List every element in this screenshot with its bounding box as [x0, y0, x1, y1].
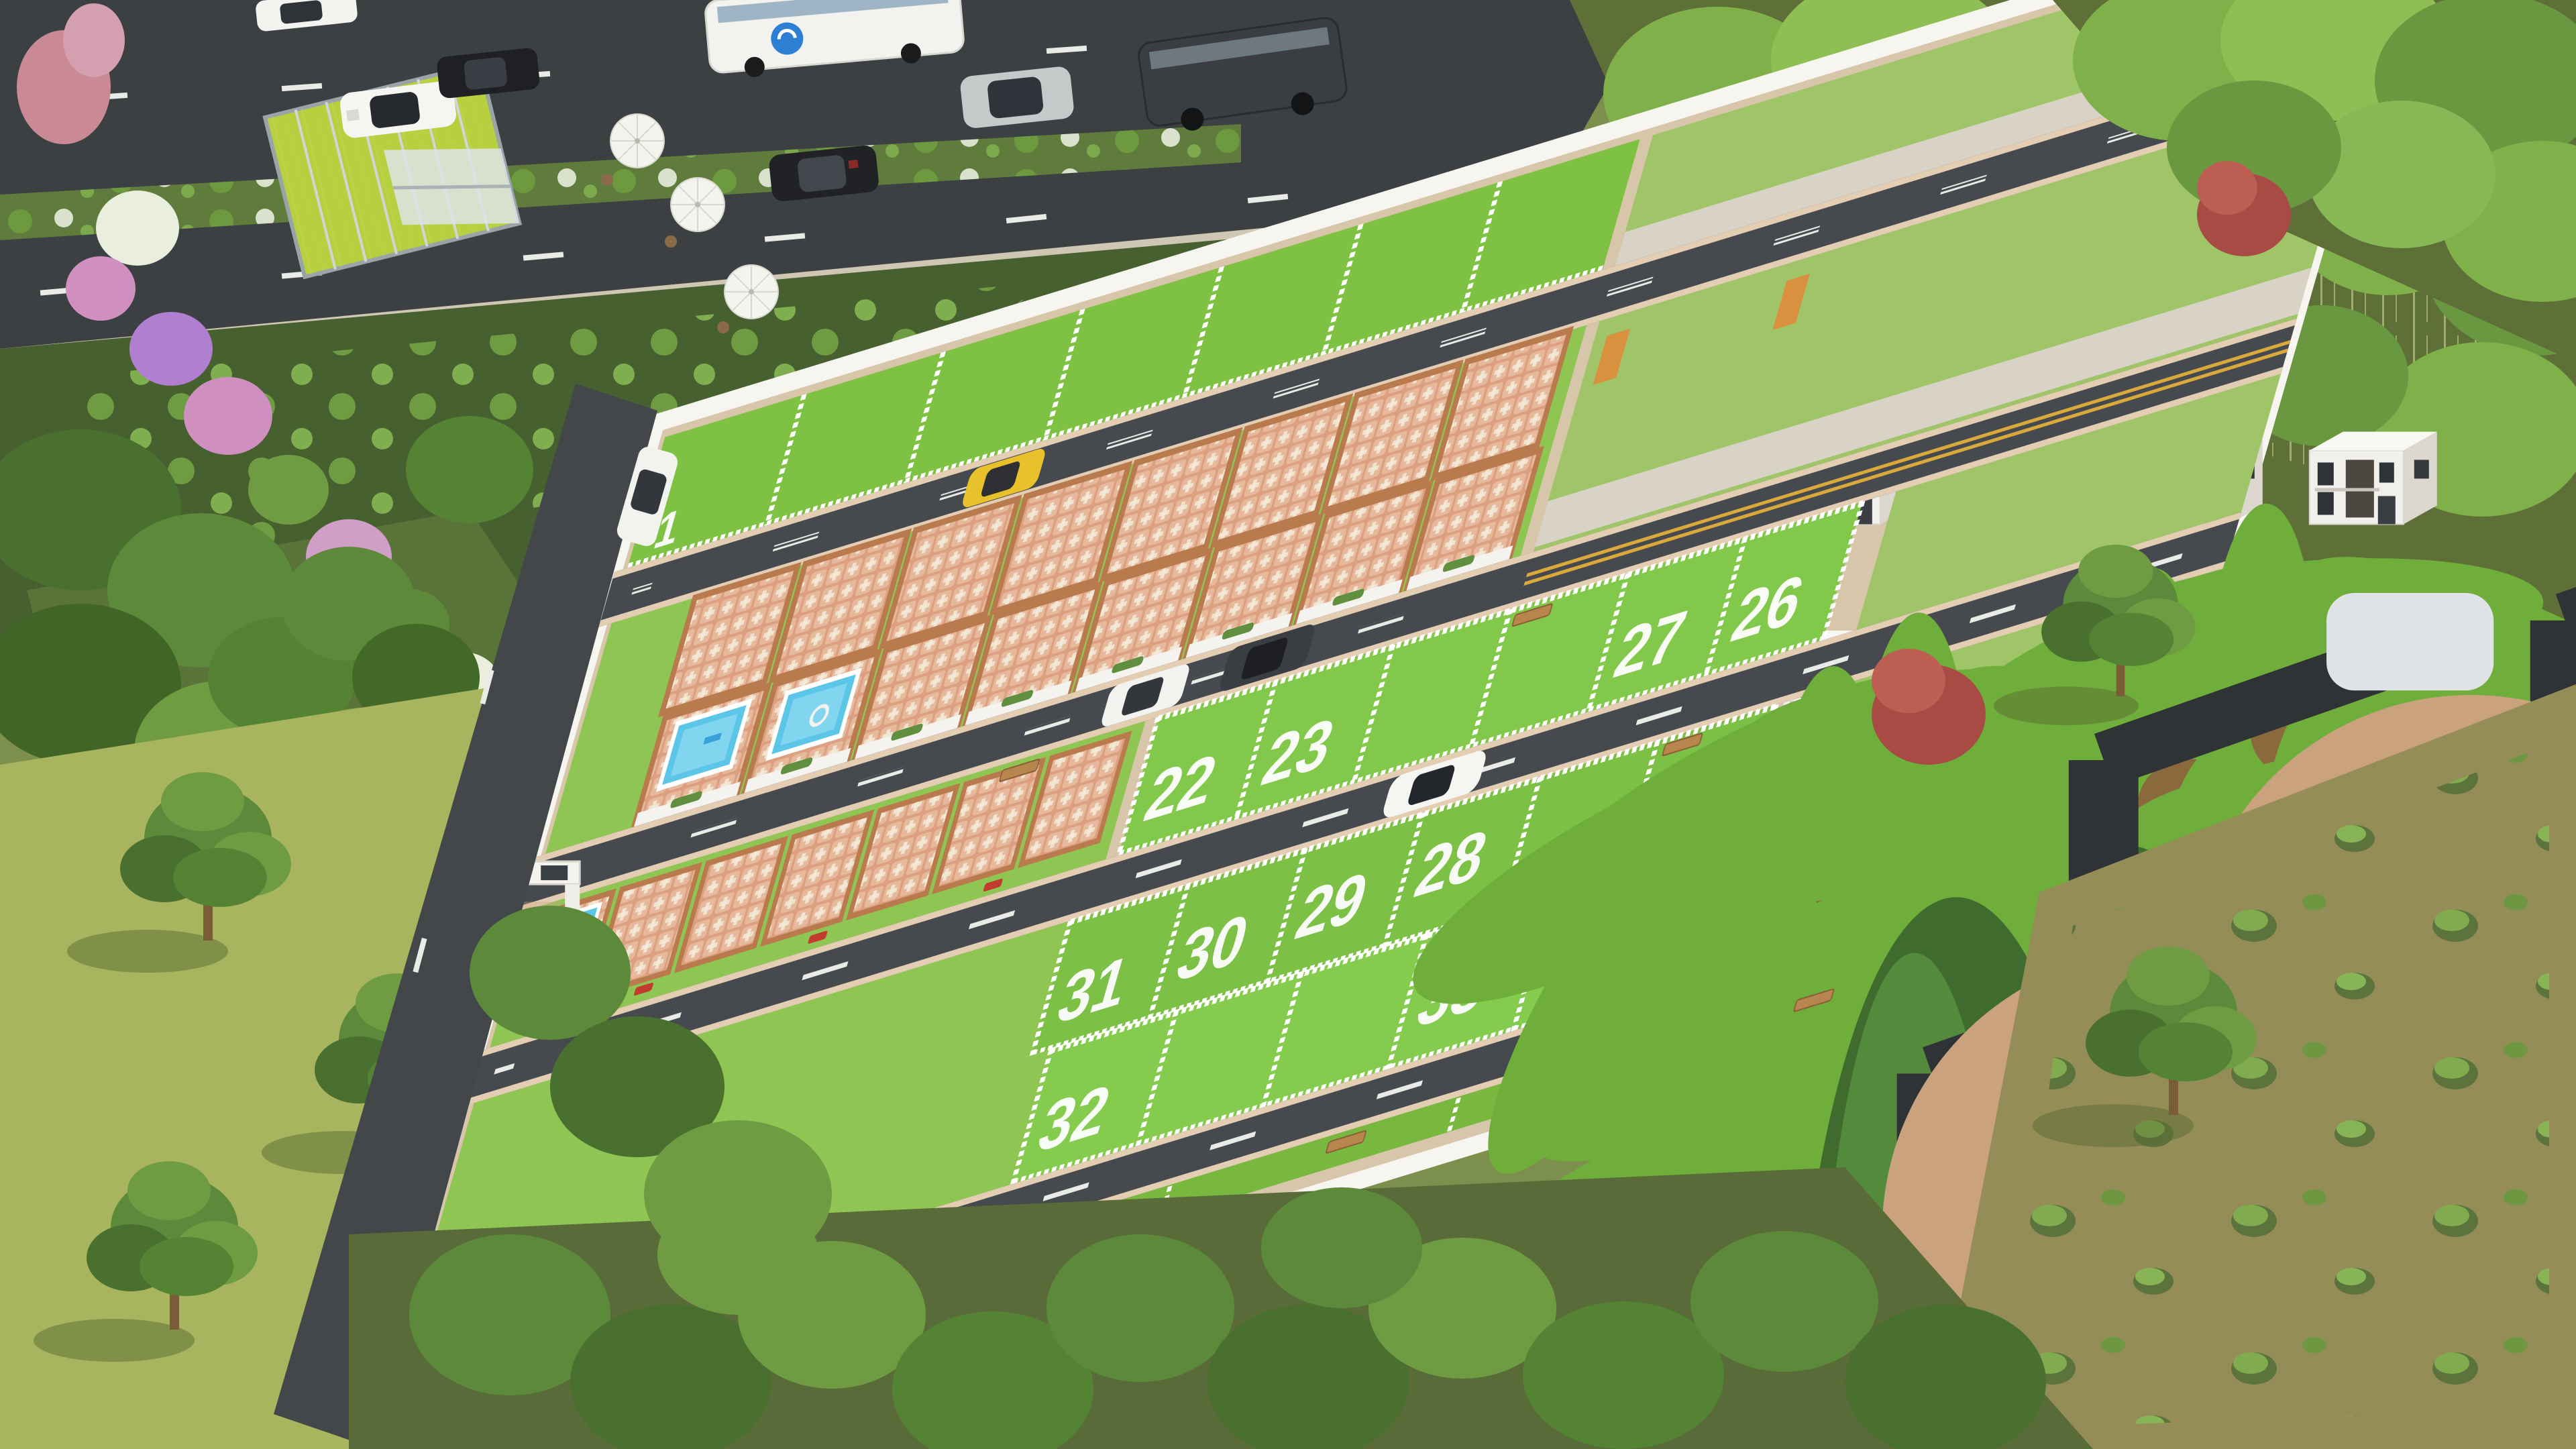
- cafe-table: [665, 235, 677, 248]
- pink-flower-bush: [184, 377, 272, 455]
- pink-tree: [63, 3, 125, 77]
- cafe-table: [601, 174, 613, 186]
- pink-flower-bush: [66, 256, 136, 321]
- green-bush: [248, 455, 329, 525]
- umbrella-icon: [724, 265, 778, 319]
- white-villa: [2310, 431, 2437, 524]
- cafe-table: [717, 321, 729, 333]
- white-flower-bush: [96, 191, 179, 266]
- gate-solar-slats: [541, 865, 568, 880]
- aerial-render-stage: 1: [0, 0, 2576, 1449]
- umbrella-icon: [610, 114, 664, 168]
- umbrella-icon: [671, 178, 724, 231]
- aerial-render: 1: [0, 0, 2576, 1449]
- purple-flower-bush: [129, 312, 213, 386]
